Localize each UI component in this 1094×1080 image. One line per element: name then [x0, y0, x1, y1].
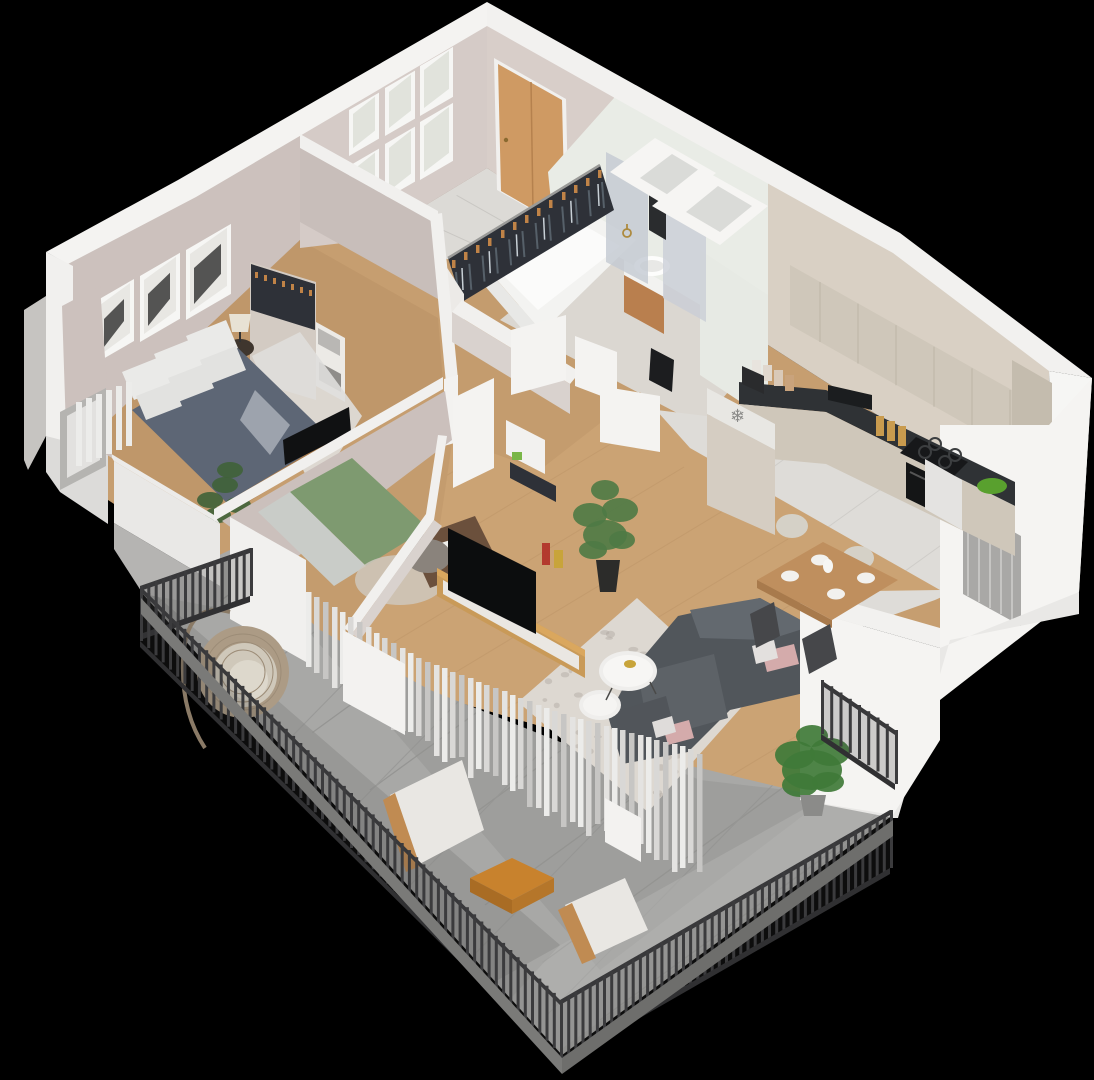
svg-text:❄: ❄	[730, 406, 745, 426]
